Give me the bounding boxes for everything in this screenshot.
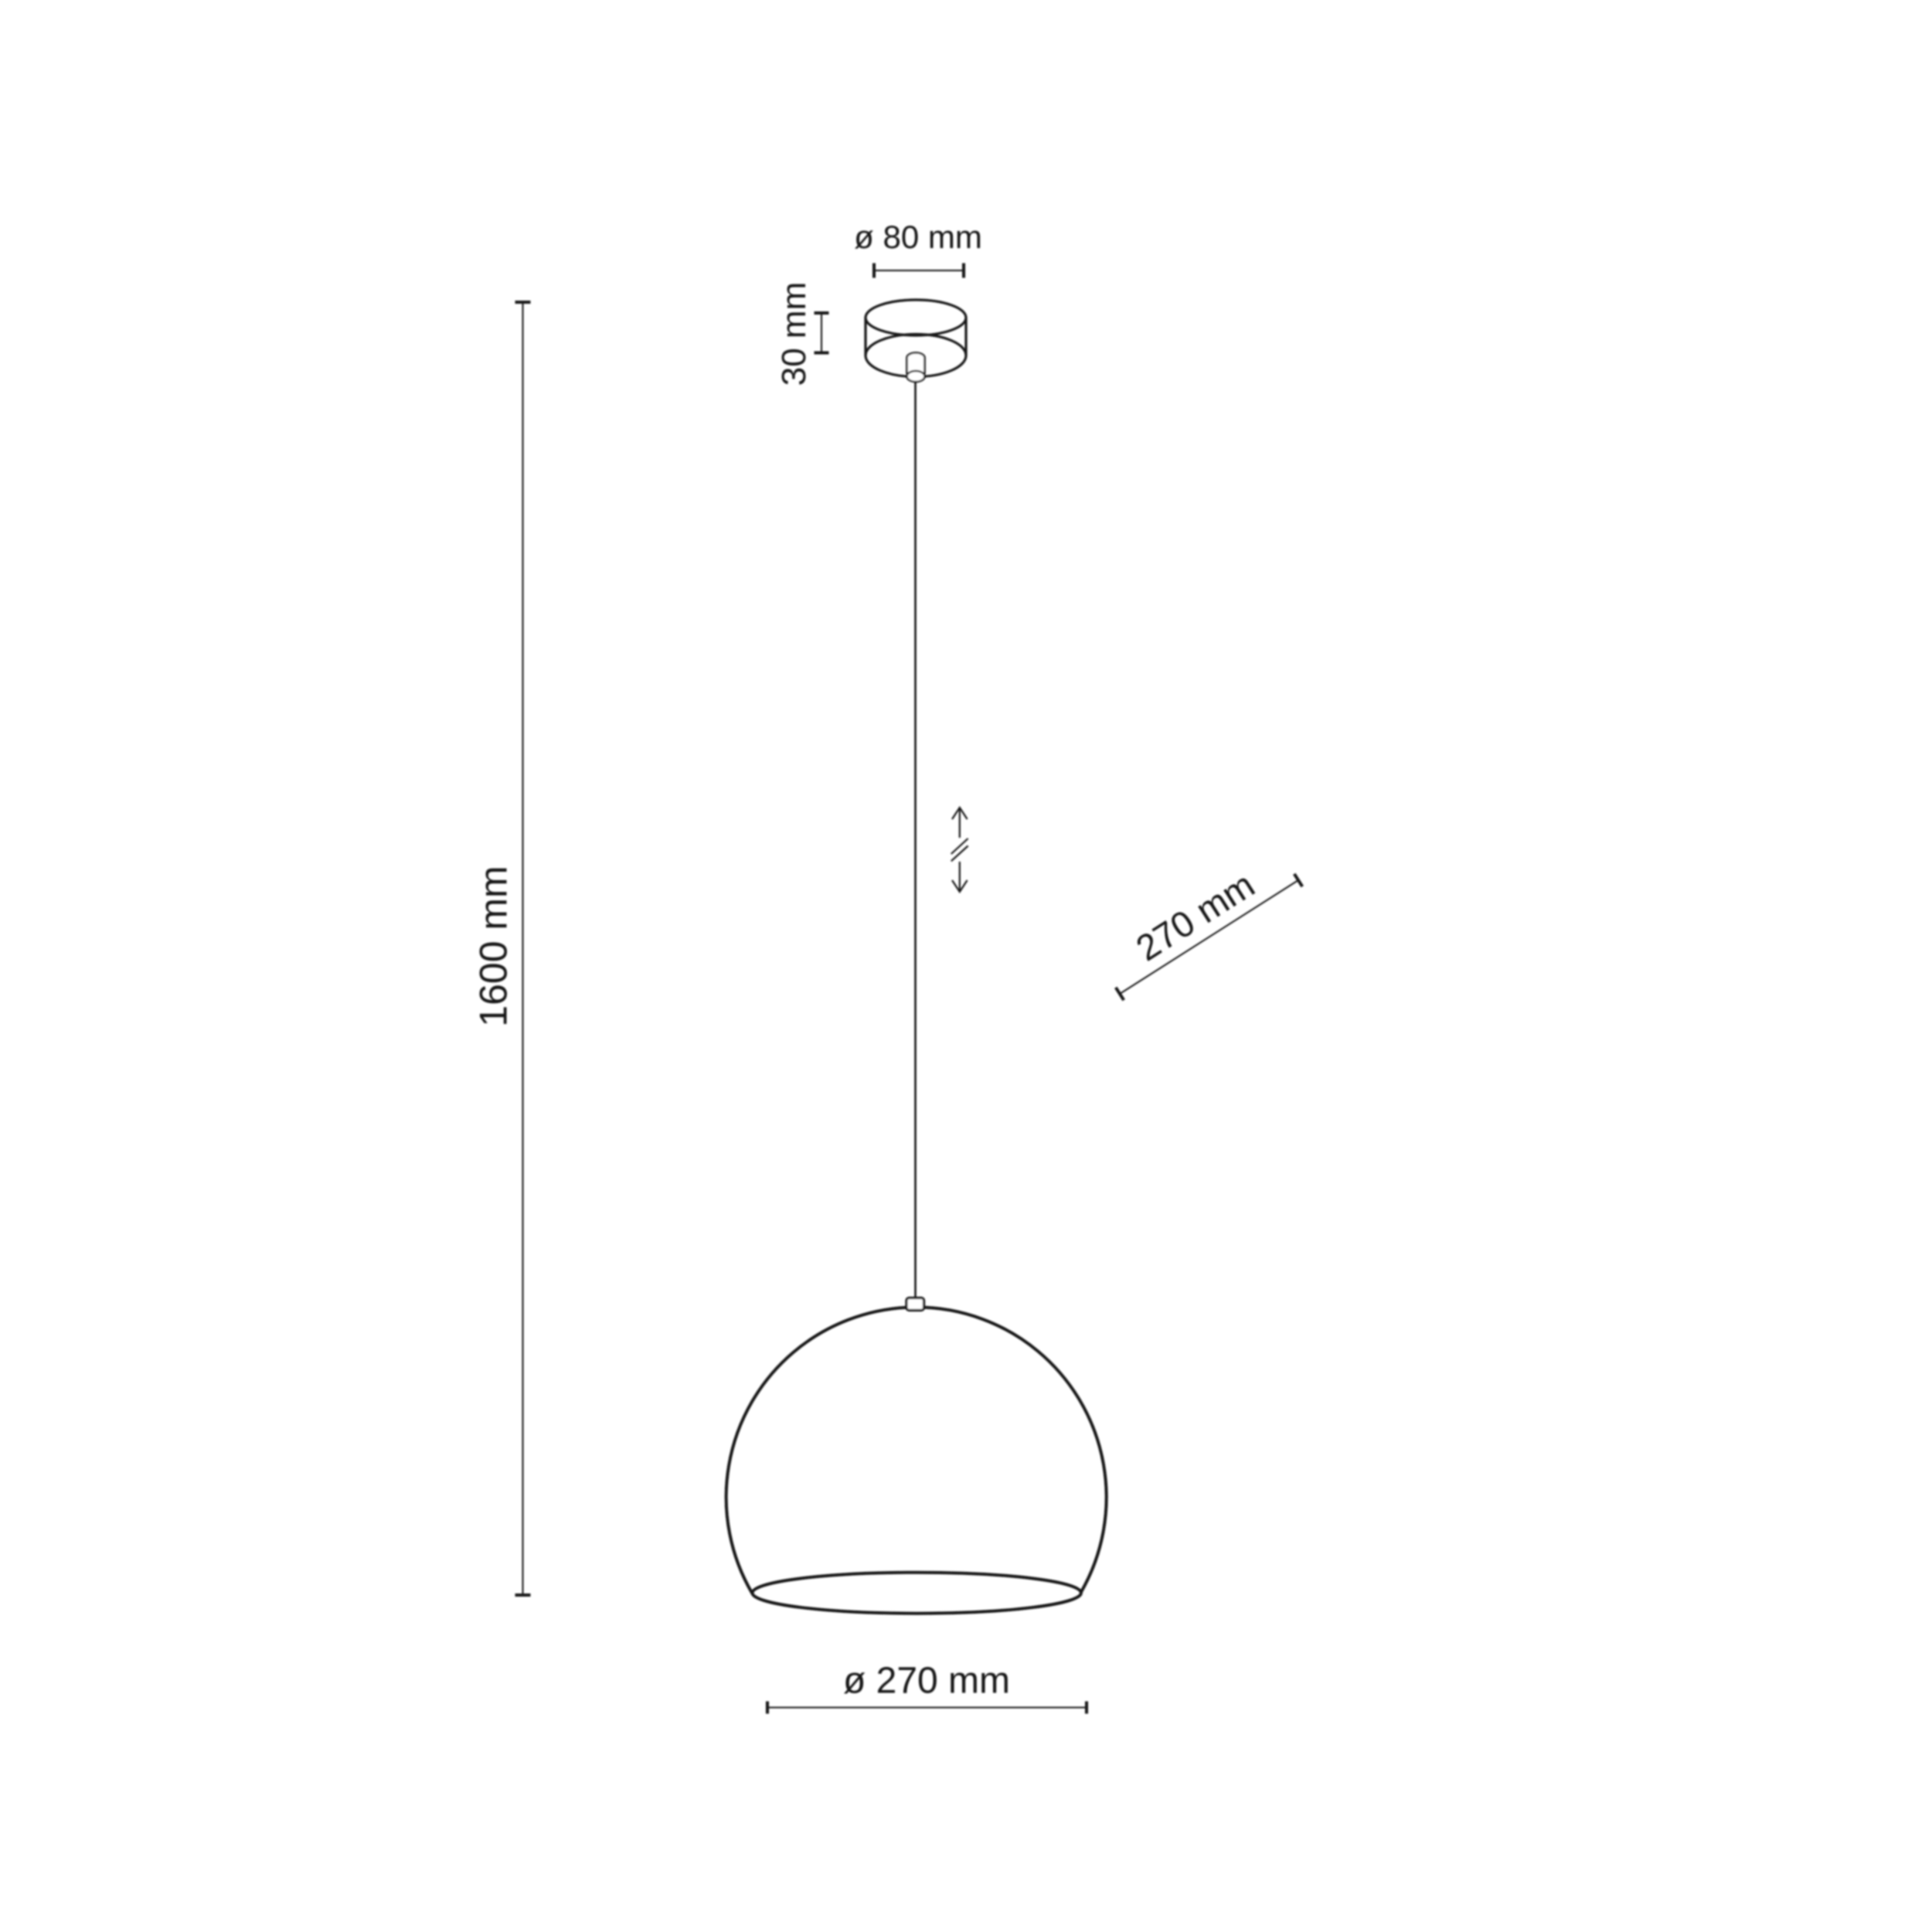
svg-text:ø 270 mm: ø 270 mm [843,1661,1010,1702]
svg-text:1600 mm: 1600 mm [472,866,515,1026]
svg-text:30 mm: 30 mm [775,282,813,386]
svg-text:ø 80 mm: ø 80 mm [854,219,982,255]
